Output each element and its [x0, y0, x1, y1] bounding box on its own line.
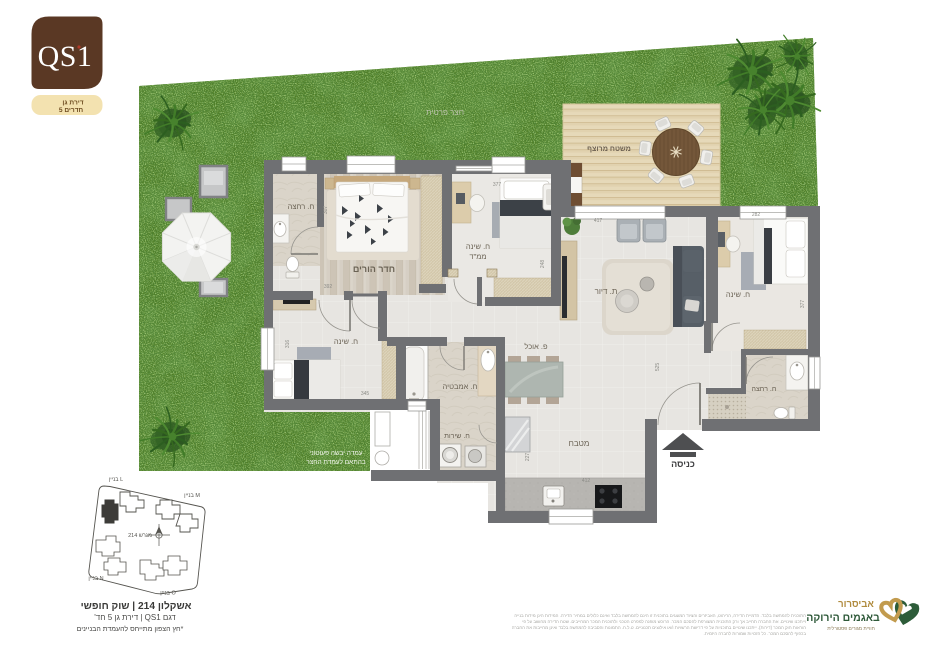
svg-text:עמדה יבשה פעוטוני: עמדה יבשה פעוטוני — [309, 450, 362, 457]
svg-text:307: 307 — [323, 206, 329, 215]
svg-text:בניין M: בניין M — [184, 493, 200, 499]
svg-text:ת. דיור: ת. דיור — [595, 287, 618, 296]
svg-text:דגם QS1 | דירת גן 5 חד': דגם QS1 | דירת גן 5 חד' — [94, 613, 176, 622]
svg-text:417: 417 — [594, 218, 603, 224]
svg-text:ח. רחצה: ח. רחצה — [288, 202, 315, 211]
svg-text:227: 227 — [525, 453, 531, 462]
svg-text:פ. אוכל: פ. אוכל — [524, 342, 548, 351]
svg-text:חוויית מגורים פסטורלית: חוויית מגורים פסטורלית — [827, 625, 875, 632]
svg-text:ח. שירות: ח. שירות — [444, 433, 470, 440]
svg-text:בהתאם לעמדת החצר: בהתאם לעמדת החצר — [306, 458, 366, 466]
svg-text:בניין O: בניין O — [160, 591, 176, 597]
svg-text:ממ"ד: ממ"ד — [469, 252, 486, 261]
svg-text:אשקלון 214 | שוק חופשי: אשקלון 214 | שוק חופשי — [81, 600, 192, 612]
svg-text:QS1: QS1 — [38, 40, 93, 73]
svg-text:ח. שינה: ח. שינה — [726, 290, 750, 299]
svg-text:5 חדרים: 5 חדרים — [59, 107, 84, 114]
svg-text:282: 282 — [752, 212, 761, 218]
svg-text:*חץ הצפון מתייחס להעמדת הבניינ: *חץ הצפון מתייחס להעמדת הבניינים — [77, 625, 184, 633]
svg-text:ח. אמבטיה: ח. אמבטיה — [443, 382, 478, 391]
svg-text:מגרש 214: מגרש 214 — [128, 533, 152, 539]
svg-text:525: 525 — [655, 363, 661, 372]
svg-text:חדר הורים: חדר הורים — [353, 264, 395, 274]
svg-text:כניסה: כניסה — [671, 459, 695, 469]
svg-text:248: 248 — [540, 260, 546, 269]
svg-text:חצר פרטית: חצר פרטית — [426, 108, 464, 117]
svg-text:הוראות חוק המכר (דירות). ייתכנ: הוראות חוק המכר (דירות). ייתכנו שינויים … — [512, 625, 806, 630]
svg-text:בכפוף להסכם המכר. כל הזכויות ש: בכפוף להסכם המכר. כל הזכויות שמורות לחבר… — [704, 631, 807, 636]
svg-text:316: 316 — [285, 340, 291, 349]
svg-text:אביסרור: אביסרור — [838, 599, 874, 610]
svg-text:ח. שינה: ח. שינה — [466, 242, 490, 251]
svg-text:377: 377 — [800, 300, 806, 309]
svg-text:מטבח: מטבח — [569, 439, 590, 448]
svg-text:ח. רחצה: ח. רחצה — [752, 386, 777, 393]
svg-text:ח. שינה: ח. שינה — [334, 337, 358, 346]
svg-text:בניין N: בניין N — [88, 576, 103, 582]
svg-text:התוכנית להמחשה בלבד. הדמיית הד: התוכנית להמחשה בלבד. הדמיית הדירה, הריהו… — [514, 613, 806, 618]
svg-text:וייתכנו שינויים. את החברה תחיי: וייתכנו שינויים. את החברה תחייב אך ורק ה… — [522, 619, 806, 624]
svg-text:בניין L: בניין L — [109, 477, 123, 483]
svg-text:משטח מרוצף: משטח מרוצף — [587, 144, 631, 153]
svg-text:באגמים הירוקה: באגמים הירוקה — [806, 612, 880, 624]
svg-text:377: 377 — [493, 182, 502, 188]
svg-text:345: 345 — [361, 391, 370, 397]
svg-text:דירת גן: דירת גן — [62, 100, 83, 107]
svg-text:392: 392 — [324, 284, 333, 290]
svg-text:412: 412 — [582, 478, 591, 484]
